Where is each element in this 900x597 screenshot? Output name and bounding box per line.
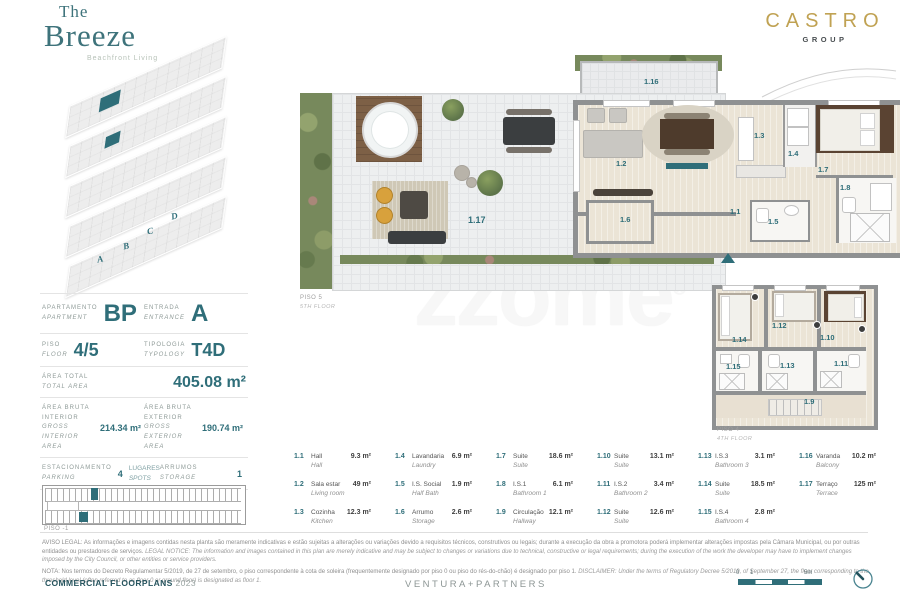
shower — [850, 213, 890, 242]
corridor-wall — [716, 391, 866, 395]
legend-area: 125 m² — [854, 480, 876, 490]
disclaimer-paragraph-1: AVISO LEGAL: As informações e imagens co… — [42, 539, 870, 565]
room-label-bath1: 1.8 — [840, 183, 850, 192]
nightstand — [751, 293, 759, 301]
garage-plan — [42, 485, 246, 525]
window — [573, 120, 580, 192]
legend-room-name: I.S.3Bathroom 3 — [715, 452, 749, 470]
legend-room-name: SuiteSuite — [715, 480, 730, 498]
breeze-logo: The Breeze Beachfront Living — [44, 2, 158, 62]
legend-area: 2.6 m² — [452, 508, 472, 518]
legend-number: 1.7 — [496, 452, 513, 462]
legend-number: 1.5 — [395, 480, 412, 490]
dining-chairs-bottom — [664, 149, 710, 155]
site-boundary-curve — [760, 55, 898, 101]
room-label-kitchen: 1.3 — [754, 131, 764, 140]
legend-number: 1.1 — [294, 452, 311, 462]
row-floor-typology: PISOFLOOR 4/5 TIPOLOGIATYPOLOGY T4D — [40, 333, 248, 366]
entrance-value: A — [191, 300, 208, 328]
logo-breeze: Breeze — [44, 18, 158, 54]
hot-tub — [362, 102, 418, 158]
legend-area: 1.9 m² — [452, 480, 472, 490]
garden-strip — [300, 93, 332, 289]
scale-zero: 0 — [736, 570, 739, 576]
row-apartment-entrance: APARTAMENTOAPARTMENT BP ENTRADAENTRANCE … — [40, 293, 248, 333]
parking-stalls-bottom — [45, 510, 241, 524]
room-label-suite2: 1.10 — [820, 333, 835, 342]
legend-number: 1.6 — [395, 508, 412, 518]
legend-area: 18.5 m² — [751, 480, 775, 490]
garage-room — [47, 501, 79, 511]
legend-item: 1.14 SuiteSuite 18.5 m² — [698, 480, 799, 508]
shower — [719, 373, 745, 390]
legend-number: 1.10 — [597, 452, 614, 462]
building-axonometric-diagram: A B C D — [35, 58, 250, 286]
legend-number: 1.3 — [294, 508, 311, 518]
typology-value: T4D — [191, 340, 225, 361]
legend-room-name: SuiteSuite — [614, 452, 629, 470]
legend-room-name: HallHall — [311, 452, 322, 470]
room-label-bath3: 1.13 — [780, 361, 795, 370]
lounge-chair-1 — [376, 187, 393, 204]
storage-label: ARRUMOSSTORAGE — [160, 464, 198, 483]
toilet — [842, 197, 856, 213]
row-gross-areas: ÁREA BRUTA INTERIORGROSS INTERIOR AREA 2… — [40, 397, 248, 457]
divider-line — [40, 532, 868, 533]
legend-area: 13.1 m² — [650, 452, 674, 462]
scale-five: 5m — [804, 570, 812, 576]
pillow — [860, 130, 875, 146]
legend-room-name: SuiteSuite — [614, 508, 629, 526]
gross-exterior-label: ÁREA BRUTA EXTERIORGROSS EXTERIOR AREA — [144, 404, 196, 452]
room-label-halfbath: 1.5 — [768, 217, 778, 226]
entrance-arrow — [721, 253, 735, 263]
parking-value: 4 — [118, 469, 123, 479]
legend-item: 1.11 I.S.2Bathroom 2 3.4 m² — [597, 480, 698, 508]
potted-tree — [442, 99, 464, 121]
legend-number: 1.13 — [698, 452, 715, 462]
legend-number: 1.12 — [597, 508, 614, 518]
floor5-interior: 1.2 1.6 1.3 1.4 1.7 1.8 — [573, 100, 900, 258]
sideboard — [666, 163, 708, 169]
legend-item: 1.10 SuiteSuite 13.1 m² — [597, 452, 698, 480]
parking-unit: LUGARESSPOTS — [129, 464, 160, 484]
room-legend: 1.1 HallHall 9.3 m² 1.2 Sala estarLiving… — [294, 452, 900, 536]
legend-number: 1.2 — [294, 480, 311, 490]
legend-area: 12.3 m² — [347, 508, 371, 518]
floor-value: 4/5 — [74, 340, 99, 361]
legend-number: 1.8 — [496, 480, 513, 490]
legend-room-name: Sala estarLiving room — [311, 480, 345, 498]
outdoor-dining-table — [503, 117, 555, 145]
armchair — [609, 108, 627, 123]
dryer — [787, 127, 809, 146]
legend-item: 1.5 I.S. SocialHalf Bath 1.9 m² — [395, 480, 496, 508]
floor4-plan: 1.14 1.12 1.10 1.15 1.13 1.11 1.9 — [712, 285, 878, 430]
pillow — [854, 297, 862, 318]
apartment-value: BP — [104, 300, 137, 328]
gross-exterior-value: 190.74 m² — [202, 423, 243, 433]
legend-item: 1.1 HallHall 9.3 m² — [294, 452, 395, 480]
outdoor-sofa — [388, 231, 446, 244]
highlighted-storage-spot — [79, 512, 88, 522]
legend-item: 1.13 I.S.3Bathroom 3 3.1 m² — [698, 452, 799, 480]
lounge-chair-2 — [376, 207, 393, 224]
legend-room-name: CozinhaKitchen — [311, 508, 335, 526]
bedroom-wall — [764, 289, 768, 351]
typology-label: TIPOLOGIATYPOLOGY — [144, 341, 185, 360]
legend-area: 12.1 m² — [549, 508, 573, 518]
floor5-plan: 1.16 1.17 — [292, 55, 898, 290]
legend-number: 1.11 — [597, 480, 614, 490]
legend-item: 1.4 LavandariaLaundry 6.9 m² — [395, 452, 496, 480]
kitchen-counter — [736, 165, 786, 178]
floor4-caption: PISO 4 4TH FLOOR — [717, 425, 752, 445]
legend-area: 49 m² — [353, 480, 371, 490]
apartment-label: APARTAMENTOAPARTMENT — [42, 304, 98, 323]
legend-room-name: I.S. SocialHalf Bath — [412, 480, 441, 498]
terrace-tree — [477, 170, 503, 196]
highlighted-unit — [104, 131, 120, 149]
room-label-balcony: 1.16 — [644, 77, 659, 86]
legend-room-name: ArrumoStorage — [412, 508, 435, 526]
row-total-area: ÁREA TOTALTOTAL AREA 405.08 m² — [40, 366, 248, 397]
legend-room-name: LavandariaLaundry — [412, 452, 444, 470]
scale-bar — [738, 579, 822, 585]
storage-value: 1 — [237, 469, 242, 479]
legend-number: 1.16 — [799, 452, 816, 462]
nightstand — [813, 321, 821, 329]
room-label-suite4: 1.14 — [732, 335, 747, 344]
shower — [820, 371, 842, 388]
gross-interior-value: 214.34 m² — [100, 423, 141, 433]
legend-item: 1.2 Sala estarLiving room 49 m² — [294, 480, 395, 508]
outdoor-chairs-bottom — [506, 147, 552, 153]
room-label-suite3: 1.12 — [772, 321, 787, 330]
legend-number: 1.9 — [496, 508, 513, 518]
room-label-terrace: 1.17 — [468, 215, 486, 225]
total-area-value: 405.08 m² — [173, 374, 246, 392]
legend-room-name: CirculaçãoHallway — [513, 508, 544, 526]
room-label-bath2: 1.11 — [834, 359, 848, 368]
legend-area: 18.6 m² — [549, 452, 573, 462]
window — [603, 100, 650, 107]
pillow — [775, 294, 784, 317]
legend-item: 1.17 TerraçoTerrace 125 m² — [799, 480, 900, 508]
parking-stalls-top — [45, 488, 241, 502]
window — [722, 285, 754, 291]
nightstand — [858, 325, 866, 333]
legend-room-name: SuiteSuite — [513, 452, 528, 470]
legend-room-name: I.S.1Bathroom 1 — [513, 480, 547, 498]
floor5-caption: PISO 5 5TH FLOOR — [300, 293, 335, 313]
unit-info-panel: APARTAMENTOAPARTMENT BP ENTRADAENTRANCE … — [40, 293, 248, 490]
total-area-label: ÁREA TOTALTOTAL AREA — [42, 373, 88, 392]
legend-number: 1.15 — [698, 508, 715, 518]
legend-number: 1.4 — [395, 452, 412, 462]
legend-area: 2.8 m² — [755, 508, 775, 518]
entrance-letter-c: C — [146, 225, 154, 236]
legend-number: 1.17 — [799, 480, 816, 490]
toilet — [848, 354, 860, 368]
pillow — [721, 296, 730, 336]
legend-area: 3.1 m² — [755, 452, 775, 462]
legend-item: 1.8 I.S.1Bathroom 1 6.1 m² — [496, 480, 597, 508]
legend-area: 3.4 m² — [654, 480, 674, 490]
legend-item: 1.7 SuiteSuite 18.6 m² — [496, 452, 597, 480]
boulder-small — [466, 177, 477, 188]
highlighted-unit — [99, 89, 121, 112]
floor-label: PISOFLOOR — [42, 341, 68, 360]
armchair — [587, 108, 605, 123]
lounge-table — [400, 191, 428, 219]
legend-area: 10.2 m² — [852, 452, 876, 462]
shower — [766, 373, 788, 390]
legend-area: 6.1 m² — [553, 480, 573, 490]
castro-group-logo: CASTRO GROUP — [758, 10, 892, 44]
highlighted-parking-spot — [91, 488, 98, 500]
room-label-storage: 1.6 — [620, 215, 630, 224]
toilet — [768, 354, 780, 368]
legend-room-name: I.S.4Bathroom 4 — [715, 508, 749, 526]
room-label-hall: 1.1 — [730, 207, 740, 216]
gross-interior-label: ÁREA BRUTA INTERIORGROSS INTERIOR AREA — [42, 404, 94, 452]
entrance-letter-d: D — [170, 210, 178, 221]
legend-area: 12.6 m² — [650, 508, 674, 518]
parking-label: ESTACIONAMENTOPARKING — [42, 464, 112, 483]
legend-room-name: TerraçoTerrace — [816, 480, 838, 498]
legend-number: 1.14 — [698, 480, 715, 490]
legend-area: 9.3 m² — [351, 452, 371, 462]
entrance-label: ENTRADAENTRANCE — [144, 304, 185, 323]
legend-room-name: I.S.2Bathroom 2 — [614, 480, 648, 498]
scale-one: 1 — [750, 570, 753, 576]
legend-item: 1.16 VarandaBalcony 10.2 m² — [799, 452, 900, 480]
room-label-bath4: 1.15 — [726, 362, 741, 371]
room-label-suite1: 1.7 — [818, 165, 828, 174]
pillow — [860, 113, 875, 129]
room-label-hallway: 1.9 — [804, 397, 814, 406]
legend-area: 6.9 m² — [452, 452, 472, 462]
washbasin — [784, 205, 799, 216]
document-title: COMMERCIAL FLOORPLANS 2023 — [45, 578, 196, 588]
legend-room-name: VarandaBalcony — [816, 452, 840, 470]
north-compass-icon — [852, 568, 874, 590]
kitchen-island — [738, 117, 754, 161]
bath-sink-counter — [870, 183, 892, 211]
castro-sub: GROUP — [758, 35, 892, 44]
washer — [787, 108, 809, 127]
tv-console — [593, 189, 653, 196]
outdoor-chairs-top — [506, 109, 552, 115]
floorplan-page: The Breeze Beachfront Living CASTRO GROU… — [0, 0, 900, 597]
room-label-laundry: 1.4 — [788, 149, 798, 158]
dining-table — [660, 119, 714, 149]
castro-wordmark: CASTRO — [758, 10, 892, 33]
sofa — [583, 130, 643, 158]
room-label-living: 1.2 — [616, 159, 626, 168]
agency-name: VENTURA+PARTNERS — [405, 579, 547, 590]
